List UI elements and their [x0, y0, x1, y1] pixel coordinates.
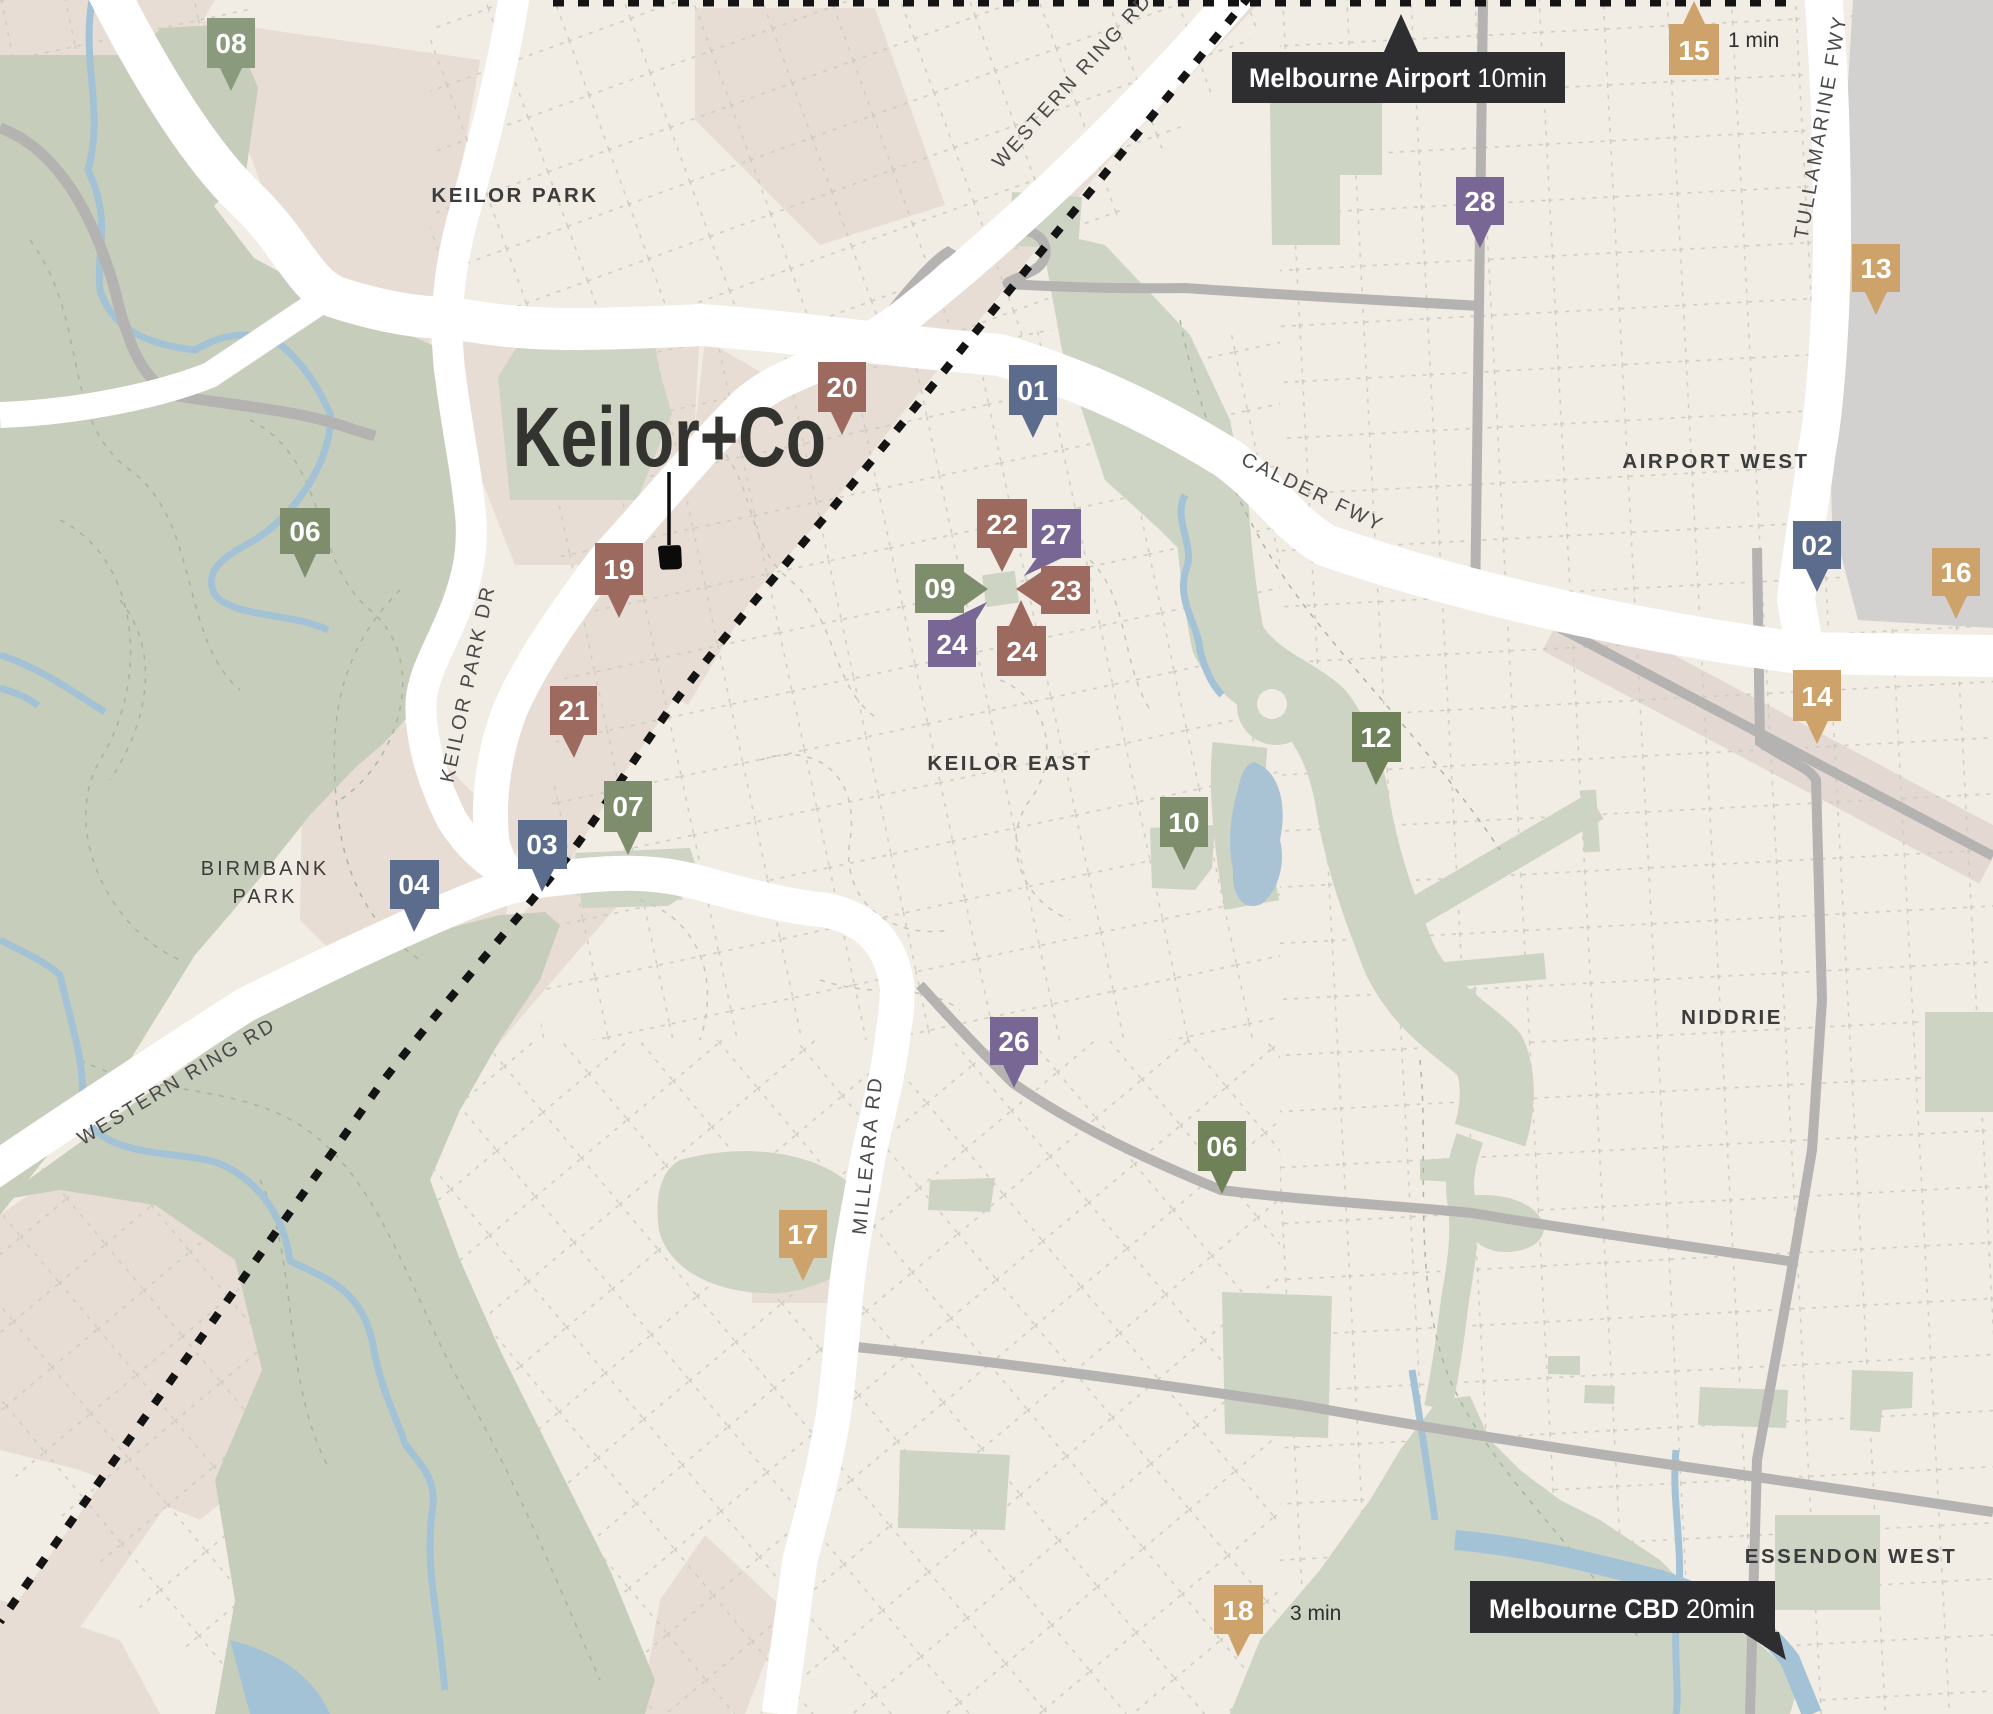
svg-text:06: 06	[1206, 1131, 1237, 1162]
svg-text:12: 12	[1360, 722, 1391, 753]
svg-text:NIDDRIE: NIDDRIE	[1681, 1006, 1783, 1029]
svg-text:Melbourne CBD 20min: Melbourne CBD 20min	[1489, 1594, 1755, 1624]
svg-text:Keilor+Co: Keilor+Co	[513, 390, 826, 484]
svg-text:1 min: 1 min	[1728, 29, 1779, 52]
svg-text:22: 22	[986, 509, 1017, 540]
svg-text:01: 01	[1017, 375, 1048, 406]
svg-text:Melbourne Airport 10min: Melbourne Airport 10min	[1249, 63, 1547, 93]
svg-text:18: 18	[1222, 1595, 1253, 1626]
svg-text:09: 09	[924, 573, 955, 604]
svg-text:23: 23	[1050, 575, 1081, 606]
svg-text:KEILOR PARK: KEILOR PARK	[431, 184, 598, 207]
svg-text:3 min: 3 min	[1290, 1602, 1341, 1625]
svg-text:19: 19	[603, 554, 634, 585]
svg-text:15: 15	[1678, 35, 1709, 66]
svg-text:21: 21	[558, 695, 589, 726]
svg-text:24: 24	[1006, 636, 1038, 667]
svg-text:10: 10	[1168, 807, 1199, 838]
svg-text:06: 06	[289, 516, 320, 547]
svg-text:PARK: PARK	[233, 886, 298, 908]
svg-text:ESSENDON WEST: ESSENDON WEST	[1745, 1545, 1957, 1568]
svg-text:02: 02	[1801, 530, 1832, 561]
svg-text:26: 26	[998, 1026, 1029, 1057]
svg-text:08: 08	[215, 28, 246, 59]
svg-text:28: 28	[1464, 186, 1495, 217]
svg-text:07: 07	[612, 791, 643, 822]
svg-text:14: 14	[1801, 681, 1833, 712]
svg-text:BIRMBANK: BIRMBANK	[201, 858, 329, 880]
svg-text:20: 20	[826, 372, 857, 403]
svg-text:16: 16	[1940, 557, 1971, 588]
svg-text:17: 17	[787, 1219, 818, 1250]
svg-text:13: 13	[1860, 253, 1891, 284]
svg-text:KEILOR EAST: KEILOR EAST	[927, 752, 1092, 775]
svg-text:24: 24	[936, 629, 968, 660]
svg-text:27: 27	[1040, 519, 1071, 550]
svg-text:04: 04	[398, 869, 430, 900]
svg-text:03: 03	[526, 829, 557, 860]
svg-text:AIRPORT WEST: AIRPORT WEST	[1622, 450, 1809, 473]
